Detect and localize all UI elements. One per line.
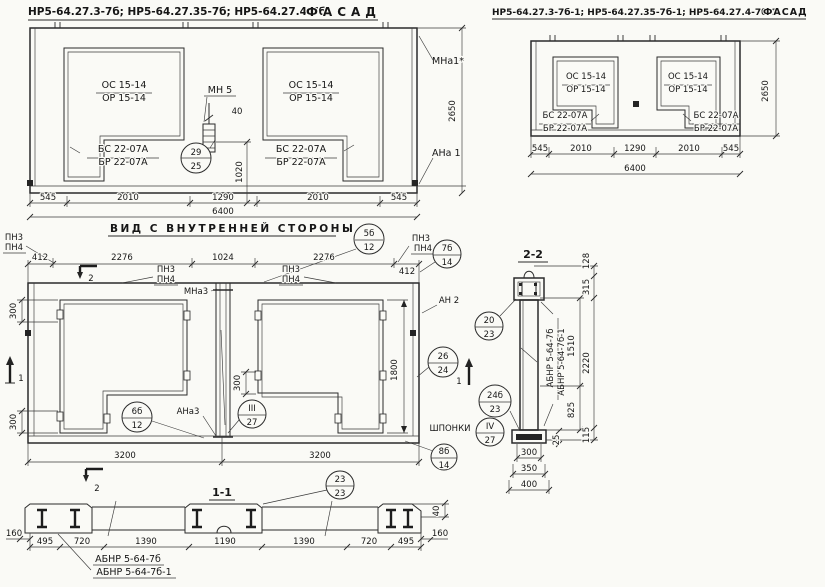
window-mark-or: ОР 15-14 (289, 93, 333, 104)
dim-6400: 6400 (212, 207, 234, 217)
corner-anchor-left (27, 180, 33, 186)
facade-right-dimensions: 2650 545 2010 1290 2010 545 6400 (528, 38, 780, 177)
section-cut-1-left-marker: 1 (5, 356, 24, 384)
corner-anchor-right (412, 180, 418, 186)
dim-545: 545 (723, 144, 739, 154)
inner-top-dimensions: 412 2276 1024 2276 412 (25, 253, 422, 283)
label-pn3: ПН3 (5, 233, 23, 243)
window-mark-or: ОР 15-14 (668, 85, 707, 95)
facade-left-title-word: ФАСАД (306, 5, 381, 19)
dim-2220: 2220 (582, 352, 592, 374)
section-cut-2-bottom-marker: 2 (83, 469, 103, 494)
dim-40: 40 (232, 107, 243, 117)
label-pn4: ПН4 (282, 275, 300, 285)
dim-2650: 2650 (761, 80, 771, 102)
dim-3200: 3200 (309, 451, 331, 461)
label-pn4: ПН4 (414, 244, 432, 254)
inner-side-view: ВИД С ВНУТРЕННЕЙ СТОРОНЫ 5б 12 (3, 222, 519, 494)
dim-1190: 1190 (214, 537, 236, 547)
mark-abnr-b: АБНР 5-64-7б-1 (557, 328, 567, 395)
label-mna3: МНа3 (184, 287, 208, 297)
facade-left-title: НР5-64.27.3-7б; НР5-64.27.35-7б; НР5-64.… (28, 6, 326, 18)
sill-mark-bs: БС 22-07А (98, 144, 149, 155)
sill-mark-br: БР 22-07А (694, 124, 738, 134)
dim-25: 25 (552, 435, 562, 446)
dim-1020: 1020 (235, 161, 245, 183)
label-shponki: ШПОНКИ (430, 424, 471, 434)
dim-1390: 1390 (293, 537, 315, 547)
dim-400: 400 (521, 480, 537, 490)
dim-3200: 3200 (114, 451, 136, 461)
callout-bottom: 27 (485, 436, 496, 446)
inner-bottom-dimensions: 3200 3200 (25, 436, 422, 466)
dim-160-left: 160 (6, 529, 22, 539)
section-2-2-view: 2-2 АБНР 5-64-7б АБНР 5-64-7б-1 1510 825 (506, 248, 598, 494)
facade-right-view: НР5-64.27.3-7б-1; НР5-64.27.35-7б-1; НР5… (492, 7, 808, 177)
facade-left-window-1: ОС 15-14 ОР 15-14 БС 22-07А БР 22-07А (64, 48, 184, 181)
callout-top: 20 (484, 316, 495, 326)
sill-mark-bs: БС 22-07А (543, 111, 588, 121)
callout-top: IV (486, 422, 495, 432)
dim-1800: 1800 (390, 359, 400, 381)
sill-mark-br: БР 22-07А (543, 124, 587, 134)
dim-1024: 1024 (212, 253, 234, 263)
callout-bottom: 24 (438, 366, 449, 376)
dim-1290: 1290 (624, 144, 646, 154)
dim-300: 300 (521, 448, 537, 458)
dim-300: 300 (9, 303, 19, 319)
sill-mark-bs: БС 22-07А (276, 144, 327, 155)
blueprint-sheet: НР5-64.27.3-7б; НР5-64.27.35-7б; НР5-64.… (0, 0, 825, 587)
dim-720: 720 (74, 537, 90, 547)
window-mark-os: ОС 15-14 (668, 72, 708, 82)
dim-2010: 2010 (570, 144, 592, 154)
joint-mark (633, 101, 639, 107)
dim-2650: 2650 (448, 100, 458, 122)
callout-bottom: 23 (490, 405, 501, 415)
section-2-2-column (512, 271, 546, 443)
dim-720: 720 (361, 537, 377, 547)
dim-412: 412 (399, 267, 415, 277)
dim-545: 545 (391, 193, 407, 203)
dim-315: 315 (582, 279, 592, 295)
inner-view-title: ВИД С ВНУТРЕННЕЙ СТОРОНЫ (110, 222, 355, 235)
callout-bottom: 12 (132, 421, 143, 431)
callout-top: 8б (439, 447, 450, 457)
callout-8b-14: 8б 14 (405, 441, 457, 471)
cut-label-1: 1 (456, 377, 461, 387)
dim-545: 545 (532, 144, 548, 154)
callout-top: 26 (438, 352, 449, 362)
window-mark-or: ОР 15-14 (566, 85, 605, 95)
dim-495: 495 (398, 537, 414, 547)
callout-top: 6б (132, 407, 143, 417)
cut-label-1: 1 (18, 374, 23, 384)
mark-abnr-a: АБНР 5-64-7б (95, 554, 161, 565)
dim-160-right: 160 (432, 529, 448, 539)
callout-29-25: 29 25 (181, 140, 215, 173)
facade-left-view: НР5-64.27.3-7б; НР5-64.27.35-7б; НР5-64.… (27, 5, 466, 220)
dim-825: 825 (567, 402, 577, 418)
callout-bottom: 12 (364, 243, 375, 253)
callout-bottom: 27 (247, 418, 258, 428)
sill-mark-bs: БС 22-07А (694, 111, 739, 121)
dim-6400: 6400 (624, 164, 646, 174)
callout-bottom: 14 (439, 461, 450, 471)
label-an2: АН 2 (439, 296, 459, 306)
drawing-canvas: НР5-64.27.3-7б; НР5-64.27.35-7б; НР5-64.… (0, 0, 825, 587)
section-2-2-title: 2-2 (523, 248, 543, 261)
dim-1290: 1290 (212, 193, 234, 203)
inner-side-dimensions: 300 300 300 1800 (9, 297, 408, 436)
inner-panel (25, 283, 419, 443)
callout-bottom: 23 (484, 330, 495, 340)
edge-anchor-left (25, 330, 31, 336)
inner-window-2 (255, 300, 386, 433)
cut-label-2: 2 (88, 274, 93, 284)
facade-right-window-1: ОС 15-14 ОР 15-14 БС 22-07А БР 22-07А (539, 57, 618, 134)
dim-2010: 2010 (678, 144, 700, 154)
callout-top: 24б (487, 391, 503, 401)
callout-top: 5б (364, 229, 375, 239)
callout-26-24: 26 24 (417, 347, 458, 377)
label-pn3: ПН3 (282, 265, 300, 275)
sill-mark-br: БР 22-07А (98, 157, 148, 168)
dim-1510: 1510 (567, 335, 577, 357)
section-1-1-dimensions: 495 720 1390 1190 1390 720 495 160 160 4… (6, 500, 449, 551)
callout-bottom: 23 (335, 489, 346, 499)
dim-2276: 2276 (111, 253, 133, 263)
window-mark-os: ОС 15-14 (102, 80, 147, 91)
mark-abnr-a: АБНР 5-64-7б (546, 329, 556, 388)
dim-115: 115 (582, 427, 592, 443)
dim-2010: 2010 (117, 193, 139, 203)
section-cut-2-top-marker: 2 (77, 266, 97, 284)
label-pn3: ПН3 (157, 265, 175, 275)
window-mark-os: ОС 15-14 (289, 80, 334, 91)
label-mna1: МНа1* (432, 56, 464, 67)
dim-412: 412 (32, 253, 48, 263)
callout-top: 23 (335, 475, 346, 485)
dim-40: 40 (432, 506, 442, 517)
cut-label-2: 2 (94, 484, 99, 494)
callout-iii-27: III 27 (228, 400, 266, 433)
callout-bottom: 25 (191, 162, 202, 172)
dim-300: 300 (233, 375, 243, 391)
facade-right-window-2: ОС 15-14 ОР 15-14 БС 22-07А БР 22-07А (657, 57, 740, 134)
callout-bottom: 14 (442, 258, 453, 268)
label-pn4: ПН4 (5, 243, 23, 253)
section-2-2-marks: АБНР 5-64-7б АБНР 5-64-7б-1 (541, 302, 567, 426)
dim-350: 350 (521, 464, 537, 474)
label-pn4: ПН4 (157, 275, 175, 285)
label-ana3: АНа3 (177, 407, 200, 417)
callout-iv-27: IV 27 (476, 418, 504, 446)
lifting-loop-ticks (550, 35, 726, 41)
sill-mark-br: БР 22-07А (276, 157, 326, 168)
section-1-1-body (25, 501, 421, 536)
section-cut-1-right-marker: 1 (456, 358, 473, 387)
embed-mark-mn5: МН 5 (208, 85, 232, 96)
dim-495: 495 (37, 537, 53, 547)
facade-right-title-word: ФАСАД (763, 7, 808, 18)
callout-20-23: 20 23 (475, 299, 516, 340)
facade-left-dimensions: 1020 2650 МНа1* АНа 1 545 2010 1290 2010… (27, 25, 466, 220)
dim-300: 300 (9, 414, 19, 430)
callout-23-23: 23 23 (263, 471, 354, 504)
window-mark-os: ОС 15-14 (566, 72, 606, 82)
label-pn3: ПН3 (412, 234, 430, 244)
dim-128: 128 (582, 253, 592, 269)
label-ana1: АНа 1 (432, 148, 461, 159)
dim-2276: 2276 (313, 253, 335, 263)
mark-abnr-b: АБНР 5-64-7б-1 (96, 567, 171, 578)
lifting-loop-ticks (55, 22, 388, 28)
dim-2010: 2010 (307, 193, 329, 203)
section-1-1-title: 1-1 (212, 486, 232, 499)
dim-545: 545 (40, 193, 56, 203)
facade-right-title: НР5-64.27.3-7б-1; НР5-64.27.35-7б-1; НР5… (492, 7, 777, 18)
callout-top: III (248, 404, 256, 414)
section-1-1-view: 1-1 23 23 АБНР 5-64-7б АБНР 5-64-7б-1 (6, 471, 449, 578)
facade-left-window-2: ОС 15-14 ОР 15-14 БС 22-07А БР 22-07А (263, 48, 383, 181)
window-mark-or: ОР 15-14 (102, 93, 146, 104)
callout-top: 7б (442, 244, 453, 254)
callout-top: 29 (191, 148, 202, 158)
edge-anchor-right (410, 330, 416, 336)
ibeam-connectors (37, 510, 413, 527)
dim-1390: 1390 (135, 537, 157, 547)
